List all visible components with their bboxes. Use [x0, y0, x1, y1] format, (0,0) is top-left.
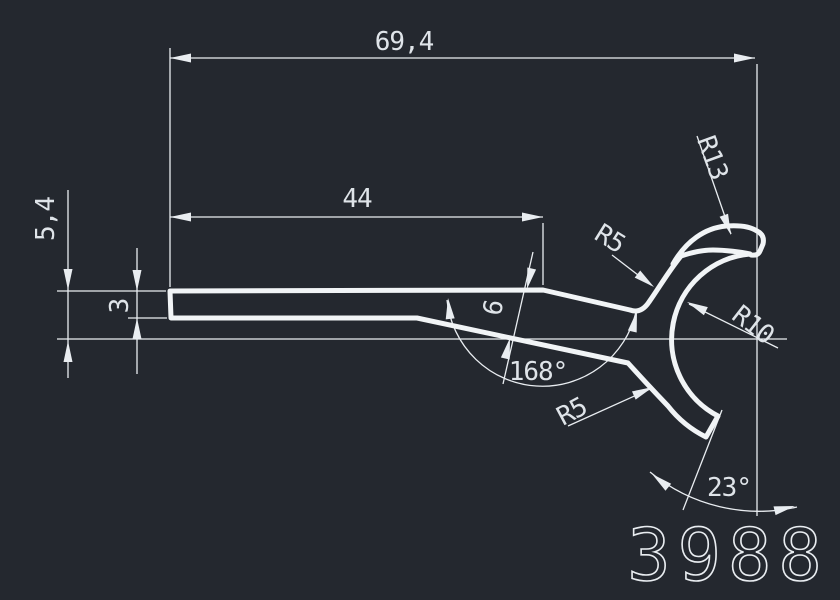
- leader-upper-fillet: [612, 255, 657, 291]
- profile-head-path: [673, 226, 763, 264]
- technical-drawing: 69,4 44 5,4 3 6 168° 23° R13 R5 R10 R5 3…: [0, 0, 840, 600]
- label-inner-radius: R10: [726, 300, 779, 351]
- label-bar-thickness: 3: [105, 299, 135, 314]
- cad-canvas[interactable]: 69,4 44 5,4 3 6 168° 23° R13 R5 R10 R5 3…: [0, 0, 840, 600]
- extension-lines: [57, 48, 787, 516]
- label-outer-radius: R13: [690, 132, 733, 184]
- label-bend-angle: 168°: [509, 357, 568, 387]
- dimension-labels: 69,4 44 5,4 3 6 168° 23° R13 R5 R10 R5: [31, 27, 779, 503]
- label-left-height: 5,4: [31, 197, 61, 241]
- profile-outline: [170, 226, 763, 437]
- part-number: 3988: [627, 513, 828, 597]
- label-tip-angle: 23°: [707, 473, 751, 503]
- dim-left-height: [64, 190, 73, 378]
- label-taper-width: 6: [478, 298, 510, 319]
- label-overall-length: 69,4: [375, 27, 434, 57]
- label-lower-fillet-radius: R5: [552, 392, 592, 432]
- label-upper-fillet-radius: R5: [589, 219, 630, 260]
- label-straight-length: 44: [342, 184, 372, 214]
- dim-overall-length: [170, 54, 755, 63]
- profile-main-path: [170, 250, 750, 437]
